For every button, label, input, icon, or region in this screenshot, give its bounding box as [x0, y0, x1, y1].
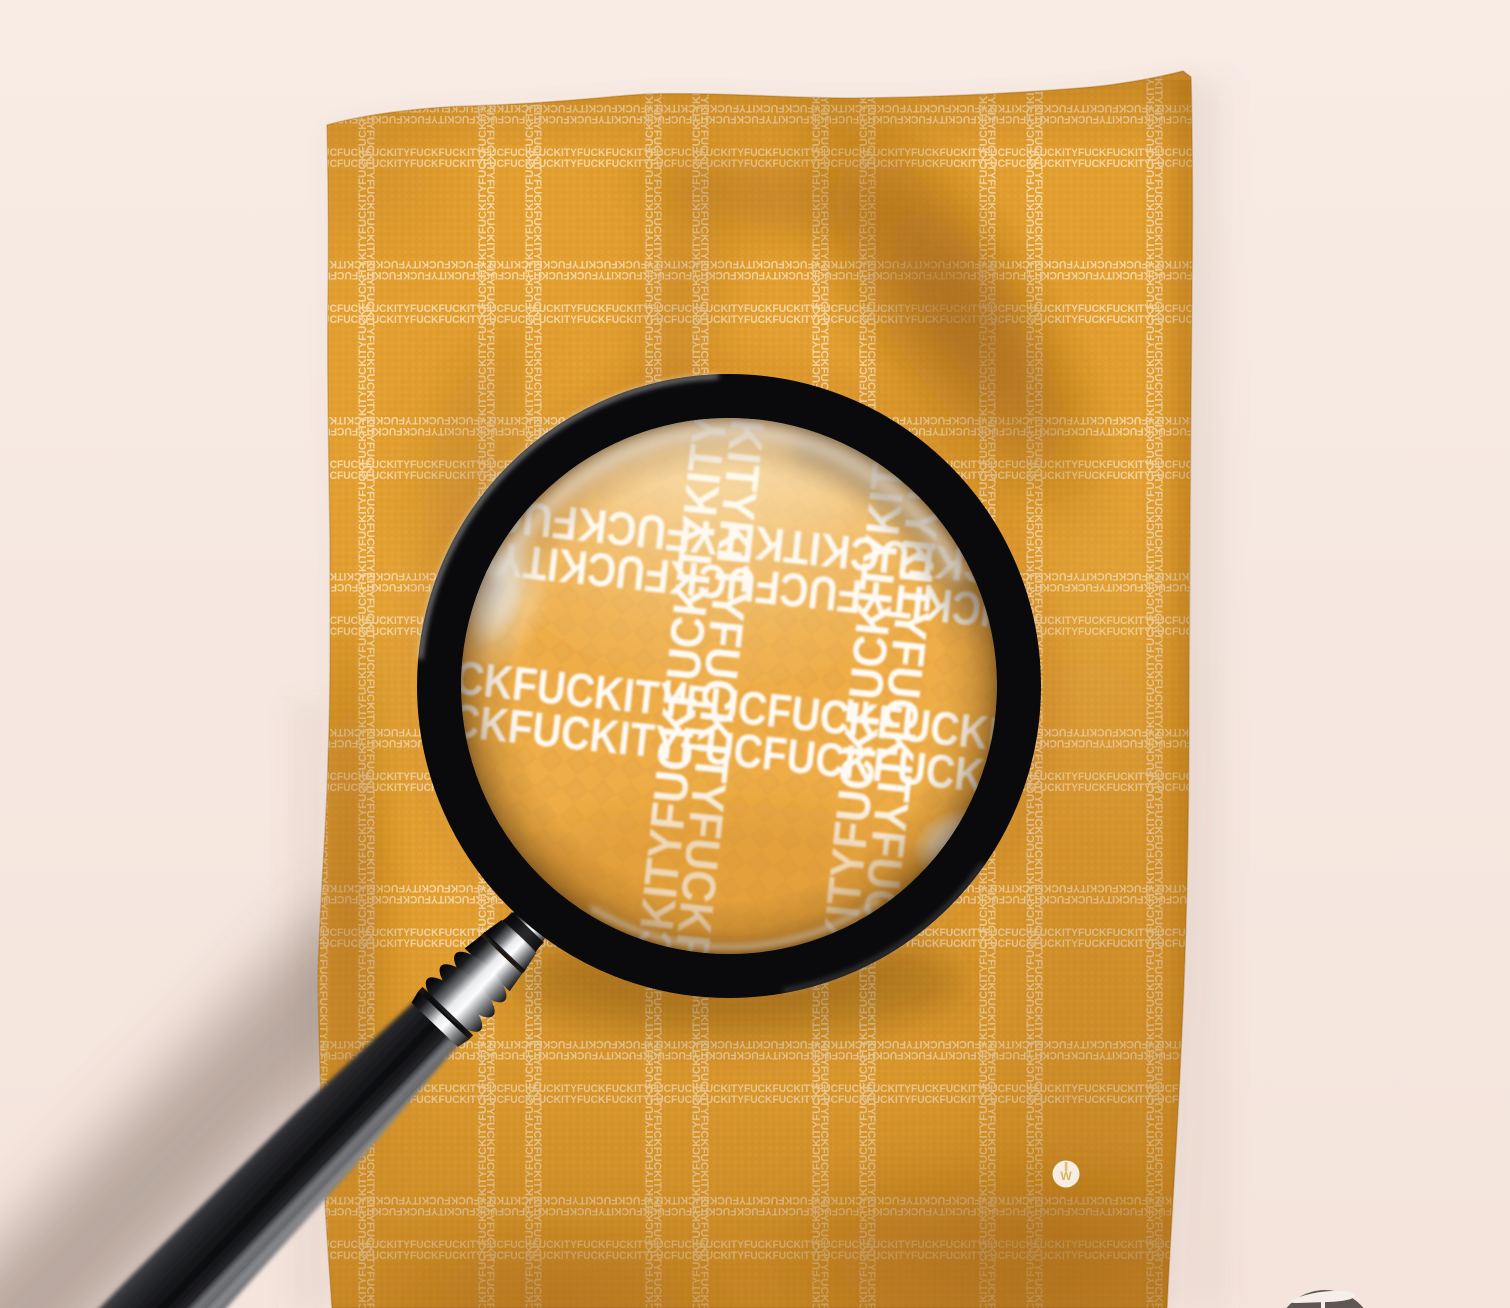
svg-text:W: W [1060, 1169, 1072, 1183]
